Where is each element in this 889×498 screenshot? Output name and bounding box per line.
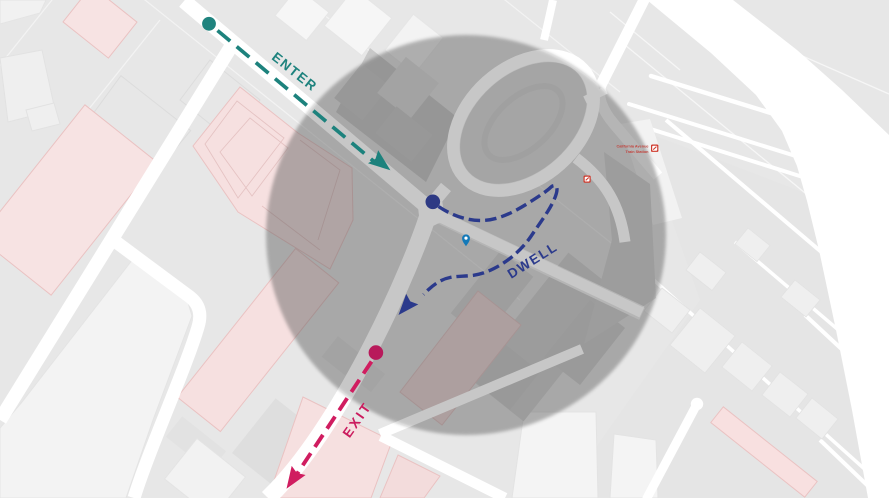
svg-text:California Avenue: California Avenue <box>617 145 649 149</box>
svg-text:Train Station: Train Station <box>626 150 650 154</box>
